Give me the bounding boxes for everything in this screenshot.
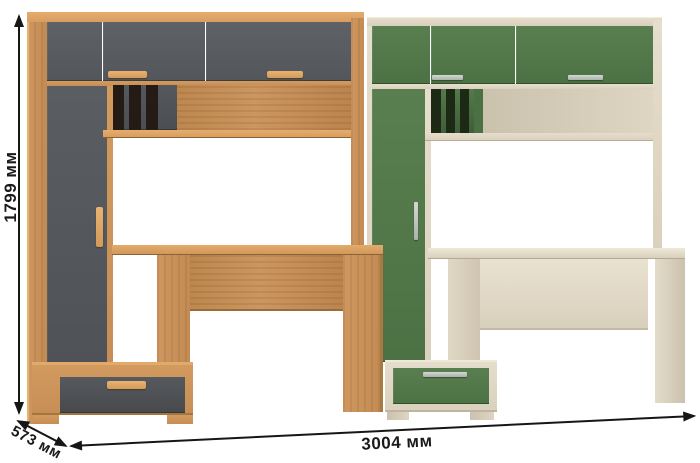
- left-overhead-door-2-handle-icon: [267, 71, 303, 78]
- left-drawer-foot: [33, 415, 59, 424]
- left-drawer-foot: [167, 415, 193, 424]
- left-wardrobe-handle-icon: [96, 207, 103, 247]
- left-desk-top: [112, 245, 383, 254]
- left-shelf-divider-icon: [141, 85, 146, 130]
- furniture-diagram: 1799 мм 573 мм 3004 мм: [0, 0, 700, 463]
- left-desk-back-panel: [190, 254, 345, 311]
- left-shelf-divider-icon: [124, 85, 129, 130]
- height-dimension-label: 1799 мм: [2, 147, 20, 227]
- left-overhead-door-1-handle-icon: [108, 71, 147, 78]
- left-shelf-bottom-edge: [103, 130, 351, 137]
- left-unit: [0, 0, 700, 463]
- left-drawer-handle-icon: [107, 381, 146, 389]
- left-unit-right-side-panel: [351, 18, 364, 254]
- left-wardrobe-top-door: [47, 22, 102, 81]
- left-desk-left-leg: [157, 254, 190, 365]
- left-desk-right-panel: [343, 254, 383, 412]
- left-shelf-recess: [113, 85, 177, 130]
- left-shelf-end-panel: [163, 85, 177, 130]
- left-unit-top-strip: [27, 12, 364, 22]
- left-shelf-back-panel: [177, 85, 351, 130]
